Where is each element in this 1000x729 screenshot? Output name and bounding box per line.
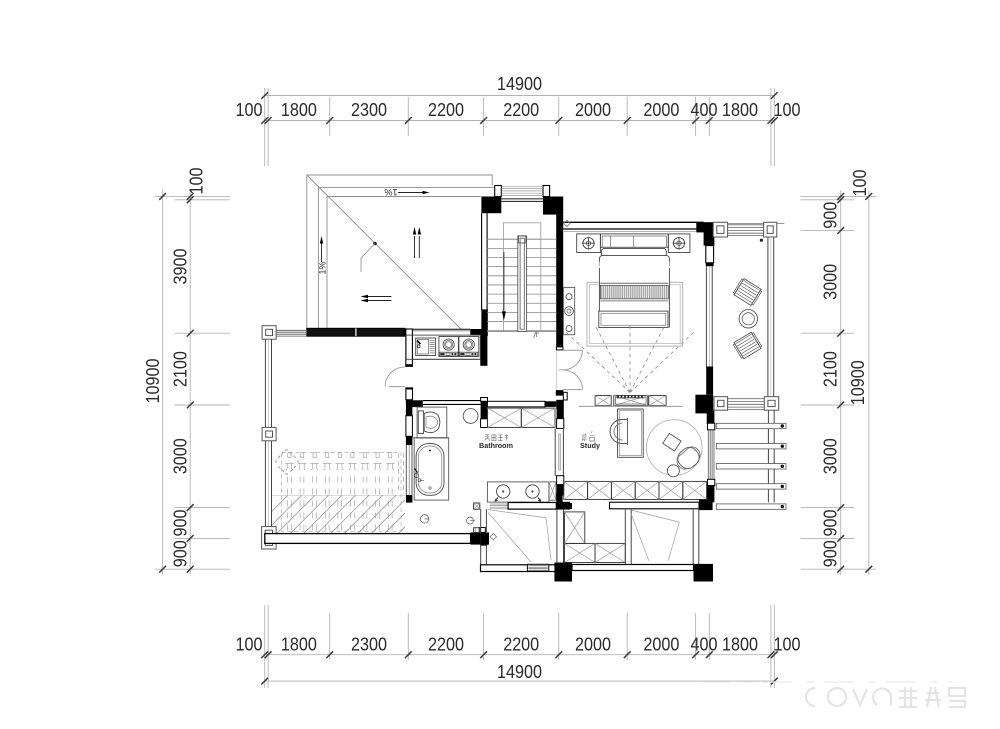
svg-text:100: 100 — [236, 635, 263, 655]
svg-text:2300: 2300 — [351, 100, 387, 120]
svg-text:2200: 2200 — [428, 635, 464, 655]
svg-text:Bathroom: Bathroom — [479, 441, 513, 450]
svg-text:2300: 2300 — [351, 635, 387, 655]
svg-text:2200: 2200 — [503, 100, 539, 120]
svg-text:Study: Study — [580, 441, 600, 450]
svg-text:100: 100 — [850, 170, 870, 197]
svg-text:10900: 10900 — [143, 359, 163, 404]
svg-text:2000: 2000 — [575, 635, 611, 655]
svg-text:2100: 2100 — [171, 351, 191, 387]
svg-text:2000: 2000 — [575, 100, 611, 120]
svg-text:2200: 2200 — [503, 635, 539, 655]
svg-text:2000: 2000 — [643, 635, 679, 655]
svg-text:1800: 1800 — [722, 100, 758, 120]
svg-text:100: 100 — [236, 100, 263, 120]
svg-text:14900: 14900 — [497, 662, 542, 682]
svg-text:400: 400 — [691, 635, 718, 655]
svg-text:900: 900 — [171, 510, 191, 537]
svg-text:10900: 10900 — [848, 360, 868, 405]
svg-text:1%: 1% — [318, 261, 328, 274]
svg-text:1%: 1% — [384, 187, 397, 197]
svg-text:900: 900 — [171, 540, 191, 567]
svg-text:900: 900 — [821, 202, 841, 229]
svg-text:100: 100 — [774, 100, 801, 120]
svg-text:900: 900 — [821, 540, 841, 567]
svg-text:900: 900 — [821, 510, 841, 537]
svg-text:100: 100 — [187, 168, 207, 195]
svg-text:3000: 3000 — [171, 438, 191, 474]
svg-text:400: 400 — [691, 100, 718, 120]
svg-text:3000: 3000 — [821, 438, 841, 474]
svg-text:1800: 1800 — [281, 100, 317, 120]
svg-text:2100: 2100 — [821, 351, 841, 387]
svg-text:14900: 14900 — [497, 74, 542, 94]
svg-text:3000: 3000 — [821, 264, 841, 300]
svg-text:1800: 1800 — [722, 635, 758, 655]
svg-text:2000: 2000 — [643, 100, 679, 120]
svg-text:100: 100 — [774, 635, 801, 655]
svg-text:2200: 2200 — [428, 100, 464, 120]
svg-text:3900: 3900 — [171, 249, 191, 285]
svg-text:1800: 1800 — [281, 635, 317, 655]
